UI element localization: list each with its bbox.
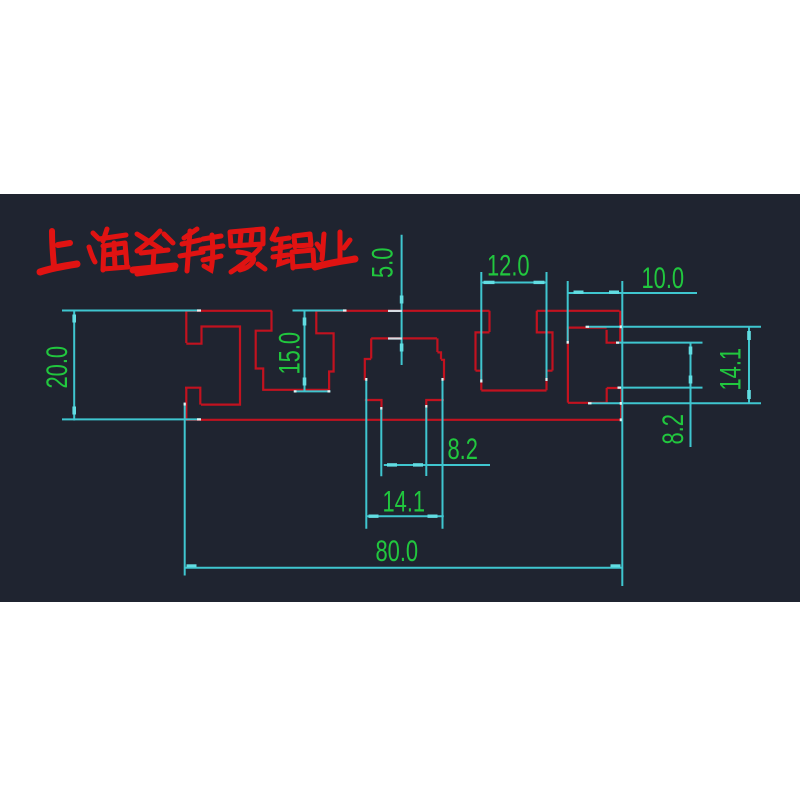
svg-text:80.0: 80.0 xyxy=(376,534,419,568)
svg-text:12.0: 12.0 xyxy=(487,248,530,282)
svg-text:15.0: 15.0 xyxy=(272,332,306,375)
svg-text:14.1: 14.1 xyxy=(713,348,747,391)
svg-text:8.2: 8.2 xyxy=(656,414,690,444)
svg-text:14.1: 14.1 xyxy=(383,484,426,518)
svg-text:10.0: 10.0 xyxy=(642,261,685,295)
svg-text:5.0: 5.0 xyxy=(365,248,399,278)
svg-text:20.0: 20.0 xyxy=(40,346,74,389)
svg-text:8.2: 8.2 xyxy=(448,432,478,466)
